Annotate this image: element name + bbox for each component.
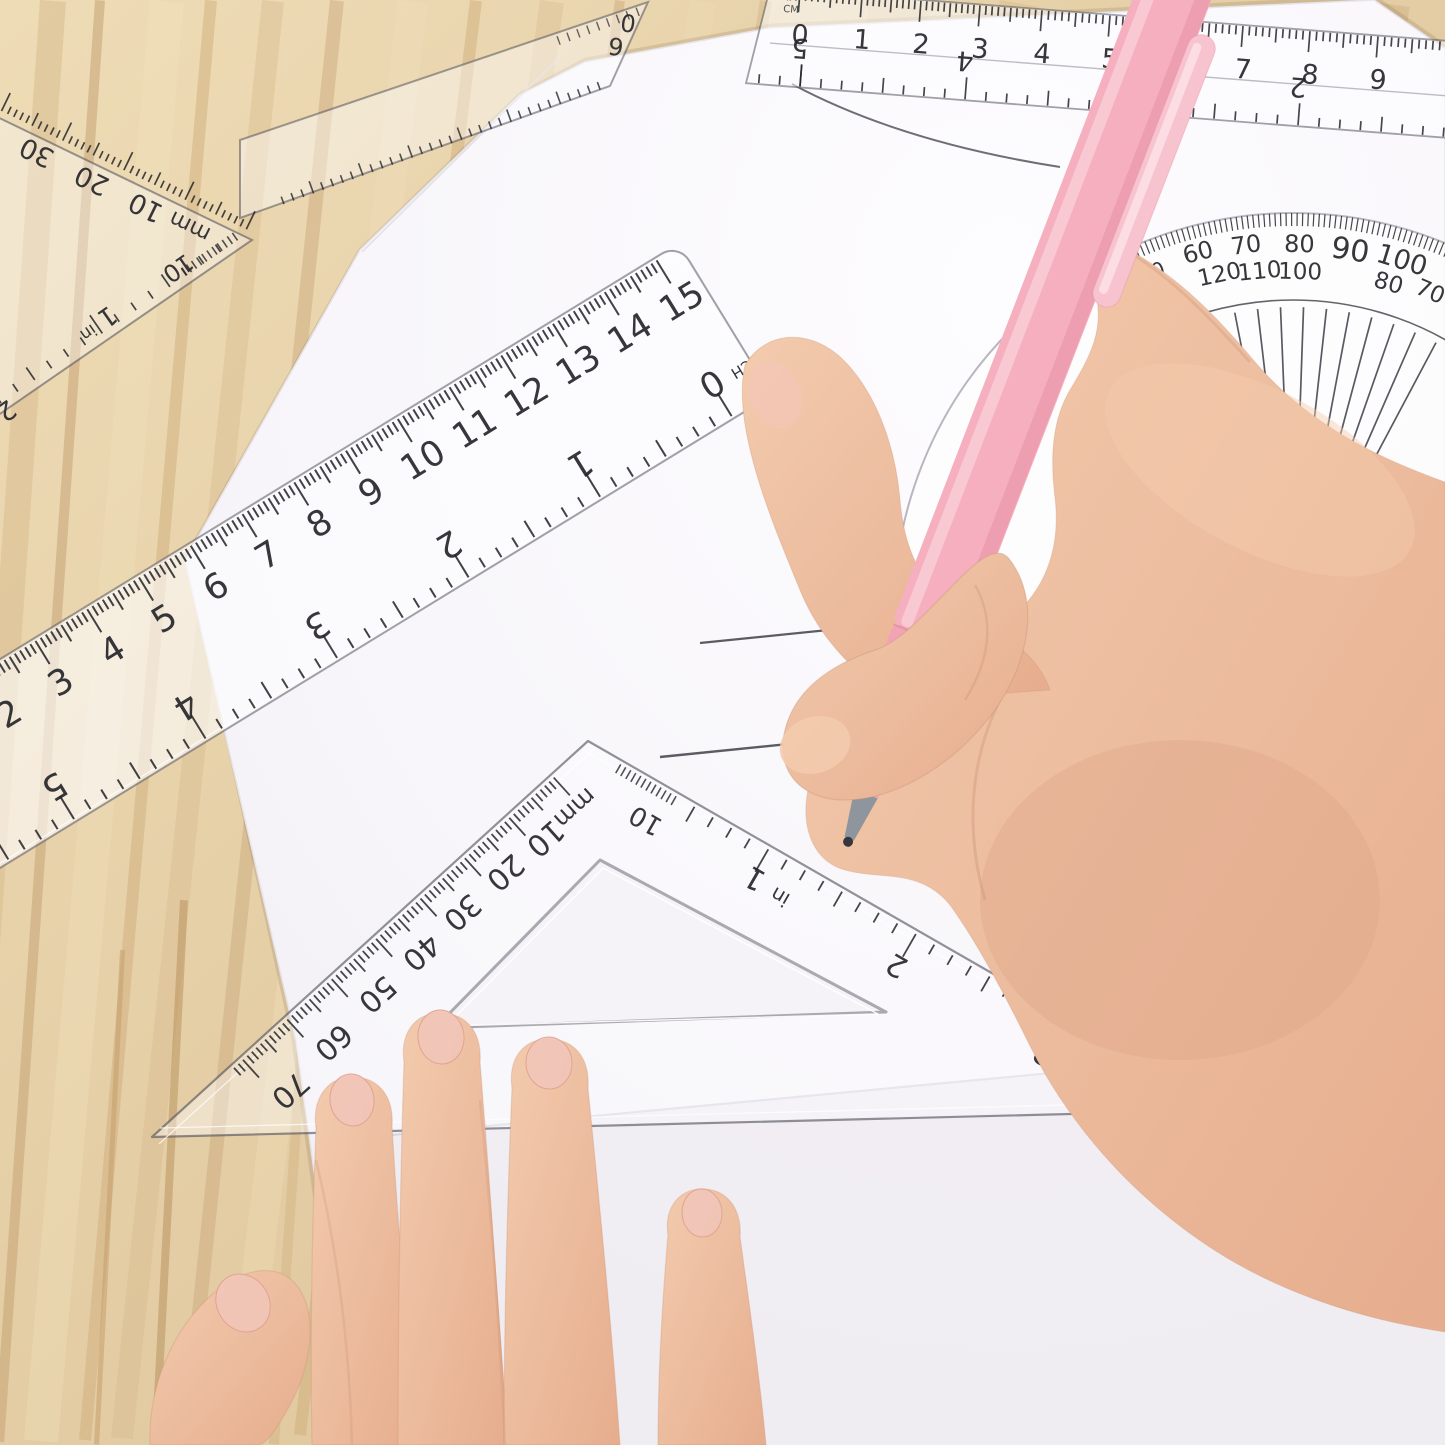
- top-ruler-inch: 5: [790, 31, 810, 63]
- photo-stage: 06302010mm101in201234567895432MMCM012345…: [0, 0, 1445, 1445]
- top-ruler-cm: 9: [1368, 64, 1388, 96]
- top-ruler-unit: CM: [783, 4, 799, 16]
- protractor-outer-number: 90: [1329, 230, 1372, 271]
- drafting-photo: 06302010mm101in201234567895432MMCM012345…: [0, 0, 1445, 1445]
- top-ruler-cm: 1: [852, 24, 872, 56]
- top-ruler-inch: 4: [955, 44, 975, 76]
- protractor-inner-number: 110: [1237, 257, 1283, 287]
- protractor-outer-number: 70: [1229, 229, 1263, 261]
- top-ruler-cm: 7: [1233, 54, 1253, 86]
- protractor-inner-number: 100: [1278, 259, 1322, 286]
- protractor-outer-number: 80: [1284, 230, 1315, 259]
- top-ruler-cm: 4: [1032, 38, 1052, 70]
- top-ruler-inch: 2: [1288, 70, 1308, 102]
- top-ruler-cm: 2: [911, 29, 931, 61]
